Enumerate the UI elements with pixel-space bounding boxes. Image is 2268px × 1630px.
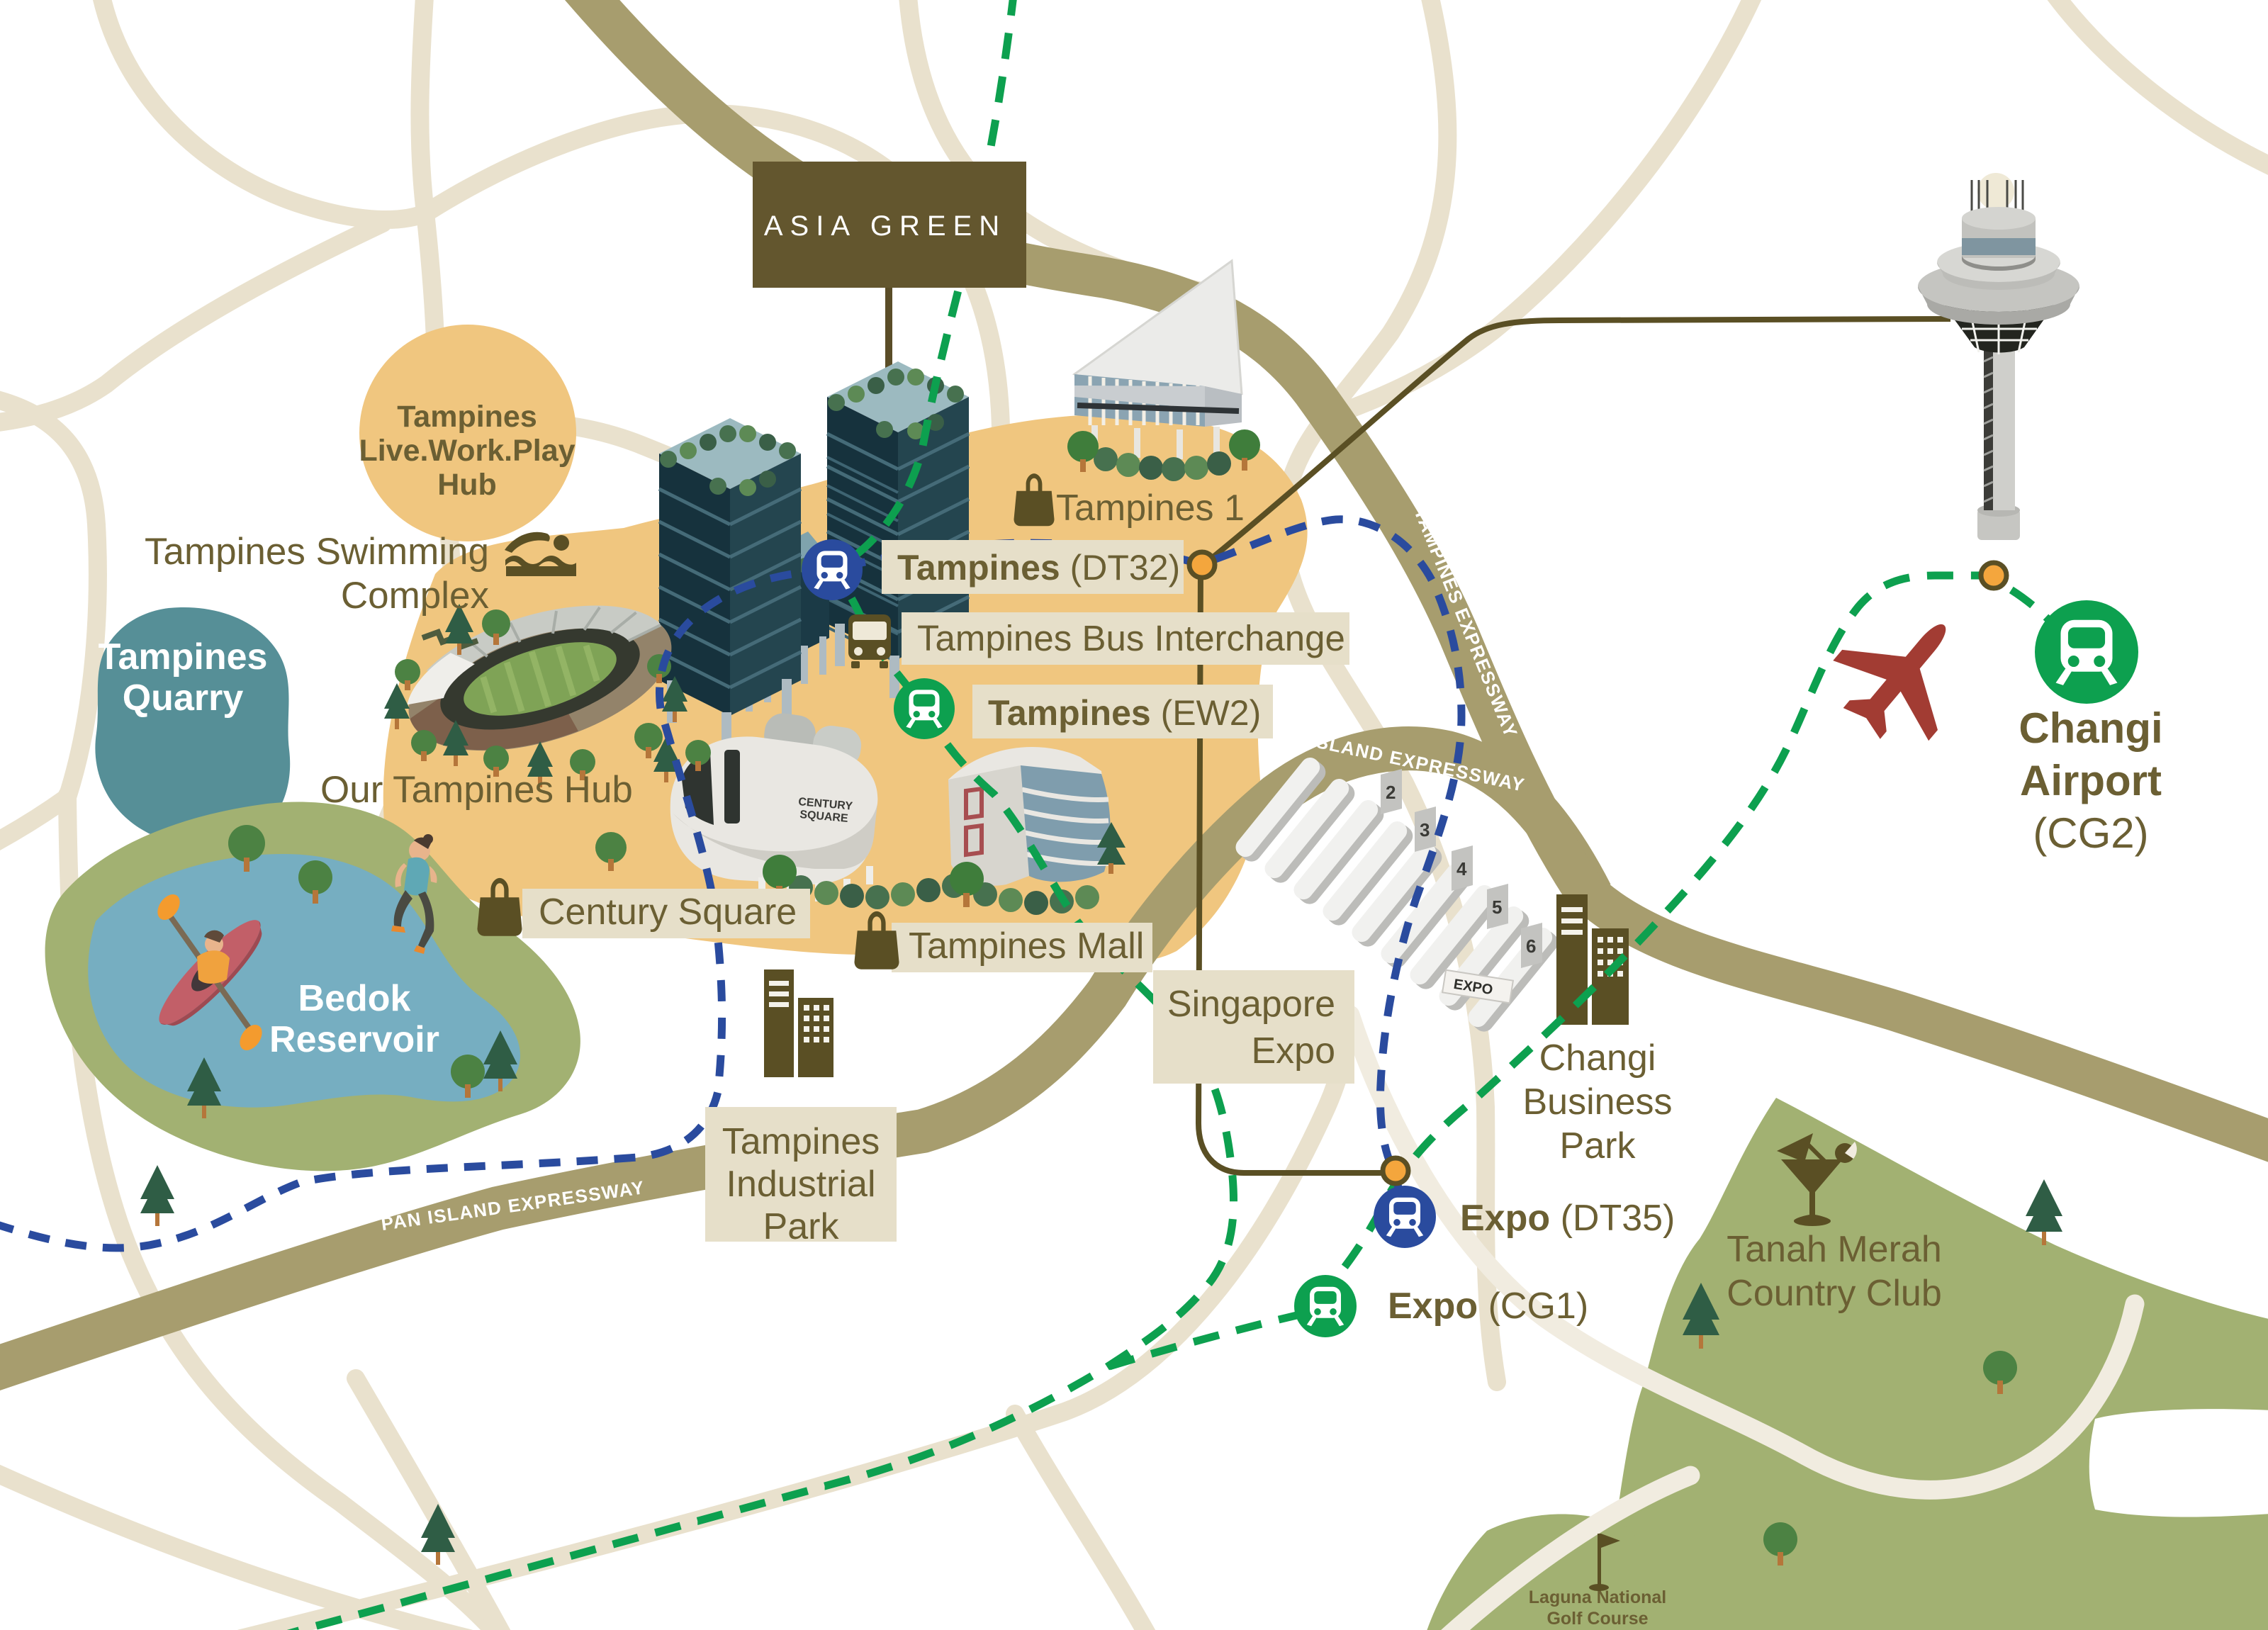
svg-text:Expo (CG1): Expo (CG1)	[1388, 1286, 1588, 1327]
svg-text:Tampines Swimming: Tampines Swimming	[145, 531, 489, 573]
svg-text:Changi: Changi	[1539, 1038, 1656, 1079]
svg-text:(CG2): (CG2)	[2033, 809, 2148, 857]
svg-text:Tampines Bus Interchange: Tampines Bus Interchange	[917, 618, 1345, 658]
svg-text:2: 2	[1386, 782, 1396, 803]
svg-text:Reservoir: Reservoir	[269, 1019, 439, 1060]
svg-text:Tampines: Tampines	[397, 400, 537, 434]
svg-text:Live.Work.Play: Live.Work.Play	[359, 434, 575, 468]
svg-text:Tampines (EW2): Tampines (EW2)	[988, 693, 1261, 733]
svg-text:4: 4	[1456, 858, 1467, 879]
svg-text:Tanah Merah: Tanah Merah	[1727, 1229, 1942, 1270]
svg-text:Tampines 1: Tampines 1	[1056, 488, 1245, 529]
svg-text:Country Club: Country Club	[1727, 1273, 1941, 1314]
svg-text:Expo: Expo	[1251, 1030, 1335, 1072]
svg-text:Park: Park	[763, 1206, 840, 1247]
svg-text:Golf Course: Golf Course	[1546, 1609, 1648, 1629]
svg-text:Hub: Hub	[437, 468, 497, 502]
svg-text:Airport: Airport	[2020, 757, 2162, 804]
svg-text:Tampines Mall: Tampines Mall	[909, 926, 1144, 967]
svg-text:3: 3	[1420, 819, 1430, 841]
svg-text:Century Square: Century Square	[539, 892, 797, 933]
svg-text:Quarry: Quarry	[123, 678, 244, 719]
svg-text:Tampines: Tampines	[722, 1121, 880, 1162]
svg-text:ASIA GREEN: ASIA GREEN	[764, 210, 1006, 242]
svg-text:Our Tampines Hub: Our Tampines Hub	[320, 769, 633, 811]
svg-text:Business: Business	[1523, 1081, 1673, 1123]
svg-text:Complex: Complex	[341, 575, 489, 617]
svg-text:Park: Park	[1560, 1125, 1637, 1167]
svg-text:6: 6	[1526, 935, 1536, 957]
svg-text:Tampines: Tampines	[99, 636, 268, 678]
svg-text:Industrial: Industrial	[726, 1164, 876, 1205]
svg-text:Singapore: Singapore	[1167, 984, 1335, 1025]
svg-text:Tampines (DT32): Tampines (DT32)	[897, 548, 1180, 588]
svg-text:5: 5	[1492, 896, 1502, 918]
svg-text:Expo (DT35): Expo (DT35)	[1460, 1198, 1675, 1239]
svg-text:Changi: Changi	[2019, 704, 2162, 752]
svg-text:Bedok: Bedok	[298, 978, 411, 1019]
